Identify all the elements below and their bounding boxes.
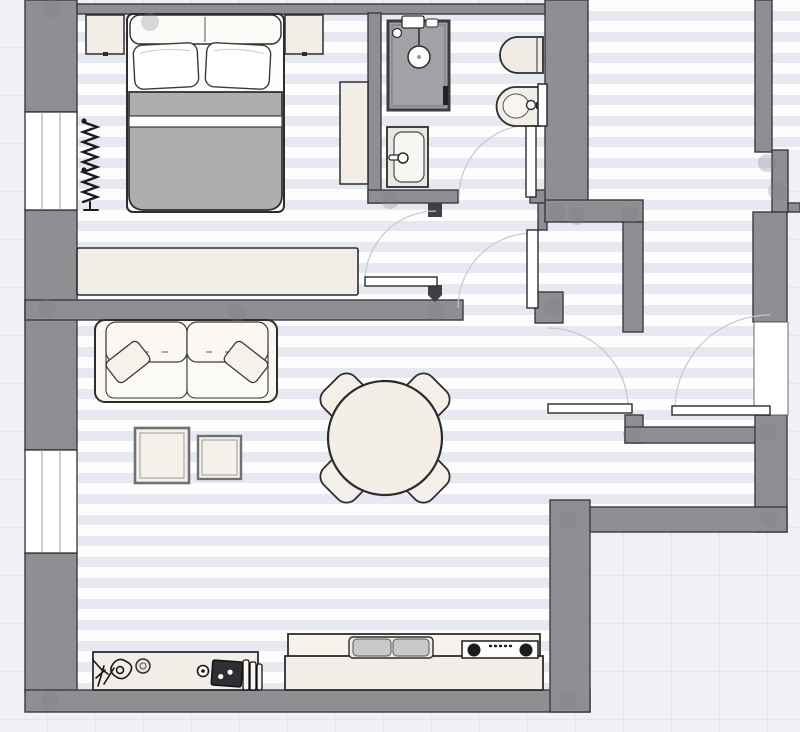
- bidet-faucet: [527, 101, 536, 110]
- blanket-fold-band: [129, 116, 282, 127]
- bedroom-door-leaf[interactable]: [365, 277, 437, 286]
- cutting-boards: [243, 660, 262, 690]
- burner-right: [520, 644, 533, 657]
- floor-right-sliver: [772, 0, 800, 150]
- wall-left-middle[interactable]: [25, 210, 77, 450]
- living-room-window[interactable]: [25, 450, 77, 553]
- wall-right-top[interactable]: [755, 0, 772, 152]
- shower-door-handle: [443, 86, 448, 105]
- counter-body: [285, 656, 543, 690]
- wall-vestibule-east[interactable]: [623, 222, 643, 332]
- shower-drain: [393, 29, 402, 38]
- decor-candle-wick: [201, 669, 205, 673]
- cooktop: [462, 641, 538, 658]
- bed-blanket: [129, 92, 282, 210]
- wardrobe[interactable]: [340, 82, 368, 184]
- wall-top[interactable]: [77, 4, 545, 14]
- toilet[interactable]: [500, 37, 543, 73]
- shower-head-center: [417, 55, 421, 59]
- wedge-bedroom-door-top: [428, 203, 442, 217]
- vestibule-door-leaf[interactable]: [548, 404, 632, 413]
- nightstand-left[interactable]: [86, 15, 124, 54]
- shower-mixer: [402, 16, 424, 28]
- console-island[interactable]: [93, 652, 262, 690]
- wall-southeast[interactable]: [583, 507, 787, 532]
- radiator-valve-mid: [81, 167, 86, 172]
- bathroom-door-leaf[interactable]: [526, 125, 536, 197]
- washbasin-faucet: [398, 153, 408, 163]
- nightstand-left-knob: [103, 52, 108, 56]
- decor-tray: [211, 660, 243, 687]
- wall-bottom[interactable]: [25, 690, 590, 712]
- coffee-table-large[interactable]: [135, 428, 189, 483]
- floor-plan-canvas: [0, 0, 800, 732]
- right-wall-opening[interactable]: [754, 322, 788, 415]
- wall-left-lower[interactable]: [25, 553, 77, 692]
- burner-left: [468, 644, 481, 657]
- wall-living-east[interactable]: [550, 500, 590, 712]
- decor-bowl: [136, 659, 150, 673]
- radiator-valve-top: [81, 118, 86, 123]
- wall-right-middle[interactable]: [753, 212, 787, 322]
- coffee-table-small[interactable]: [198, 436, 241, 479]
- dining-set[interactable]: [315, 368, 454, 507]
- nightstand-right-knob: [302, 52, 307, 56]
- dining-table-round[interactable]: [328, 381, 442, 495]
- sofa[interactable]: [95, 320, 277, 402]
- shower[interactable]: [388, 16, 449, 110]
- bidet-wall-bracket: [538, 84, 547, 126]
- wall-bathroom-west[interactable]: [368, 13, 381, 203]
- double-bed[interactable]: [127, 14, 284, 212]
- bidet[interactable]: [497, 84, 548, 126]
- sideboard-dresser[interactable]: [77, 248, 358, 295]
- double-sink: [349, 637, 433, 658]
- bidet-basin: [503, 94, 529, 118]
- wall-toilet-east[interactable]: [545, 0, 588, 213]
- shower-handle: [426, 19, 438, 27]
- corridor-door-leaf[interactable]: [672, 406, 770, 415]
- kitchen-counter[interactable]: [285, 634, 543, 690]
- bedroom-window[interactable]: [25, 112, 77, 210]
- nightstand-right[interactable]: [285, 15, 323, 54]
- wall-niche-north[interactable]: [625, 427, 757, 443]
- hallway-door-leaf[interactable]: [527, 230, 538, 308]
- wall-right-step[interactable]: [788, 203, 800, 212]
- washbasin[interactable]: [387, 127, 428, 187]
